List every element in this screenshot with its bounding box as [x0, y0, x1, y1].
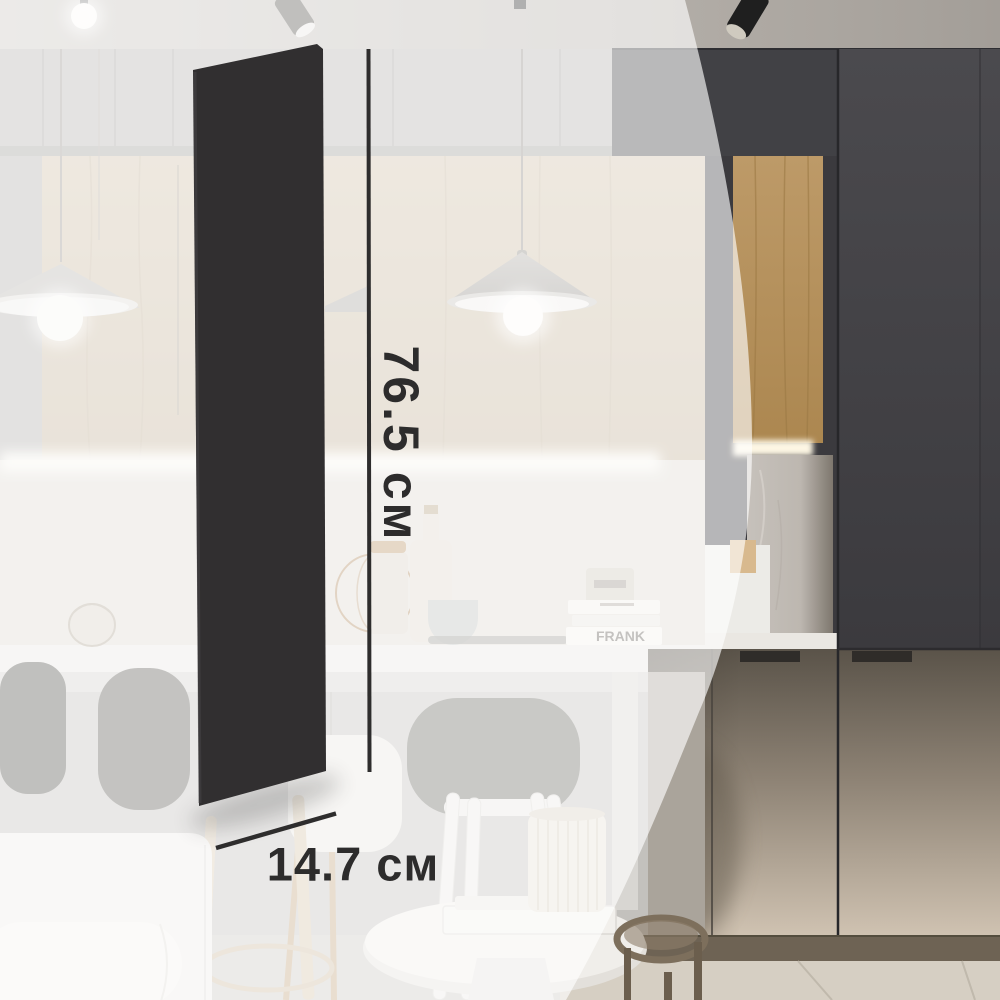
kitchen-scene: FRANK — [0, 0, 1000, 1000]
product-panel — [193, 44, 326, 806]
door-handle — [852, 651, 912, 662]
height-dimension-label: 76.5 см — [372, 345, 430, 542]
width-dimension-label: 14.7 см — [267, 837, 439, 892]
height-dimension-line — [369, 49, 370, 772]
door-handle — [740, 651, 800, 662]
tall-cabinet — [838, 49, 1000, 649]
product-dimension-card: FRANK — [0, 0, 1000, 1000]
